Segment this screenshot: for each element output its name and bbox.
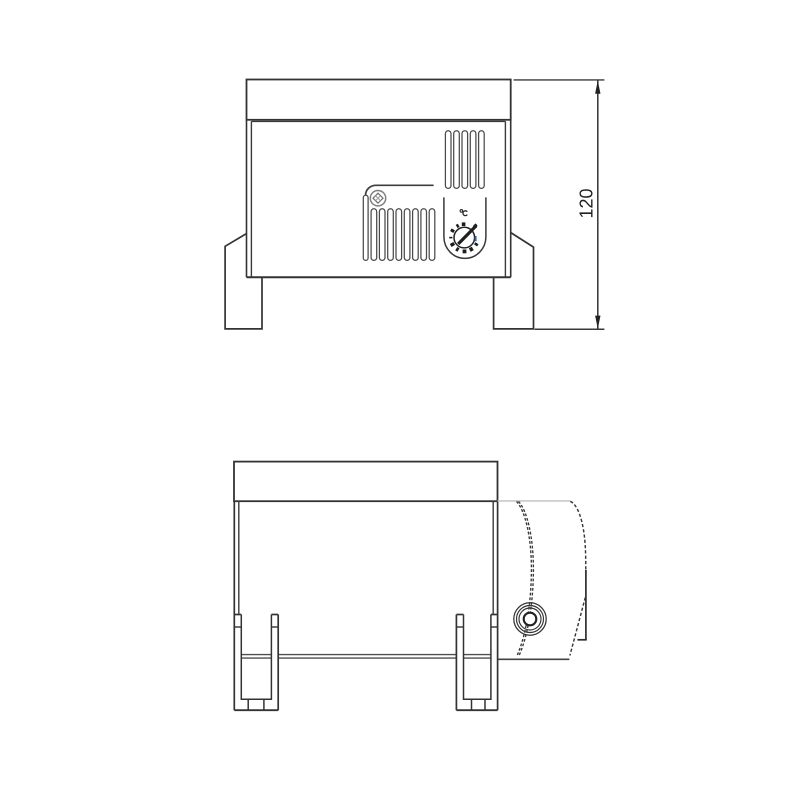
svg-text:120: 120 <box>577 188 597 218</box>
